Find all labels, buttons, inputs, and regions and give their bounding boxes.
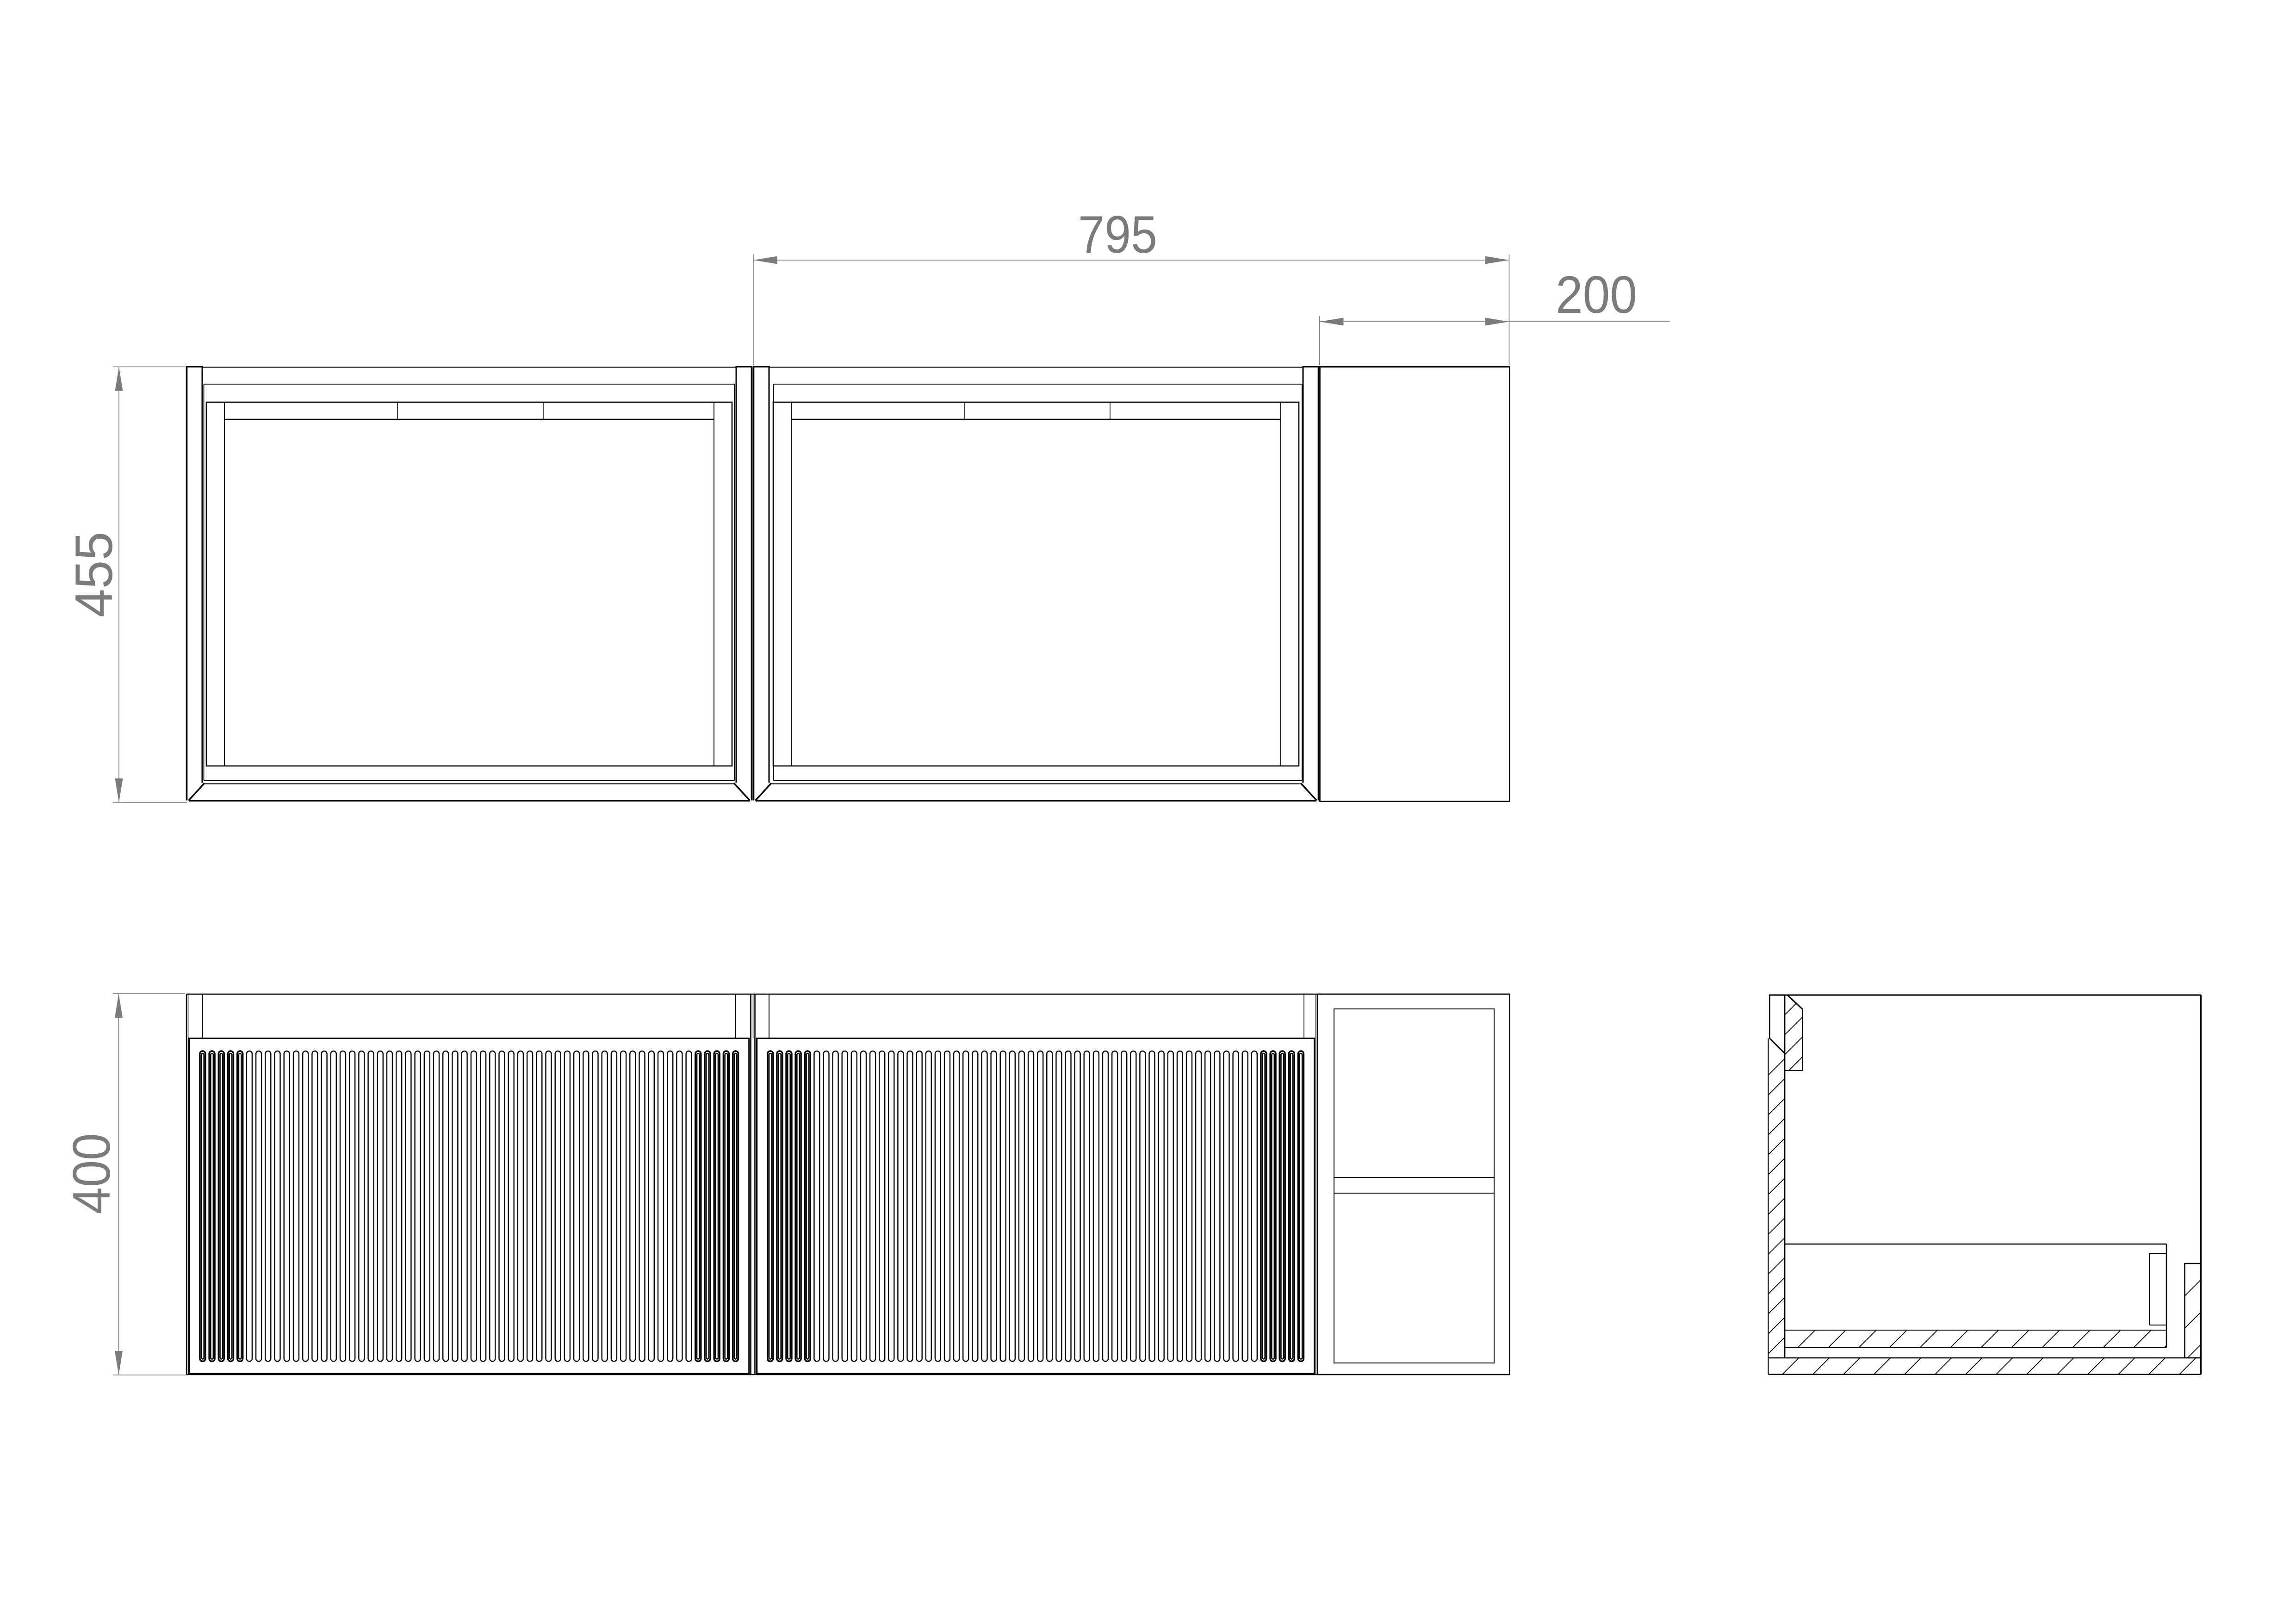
svg-text:400: 400 xyxy=(62,1133,121,1214)
svg-text:455: 455 xyxy=(65,532,124,617)
svg-text:795: 795 xyxy=(1078,205,1157,264)
svg-text:200: 200 xyxy=(1556,266,1637,324)
